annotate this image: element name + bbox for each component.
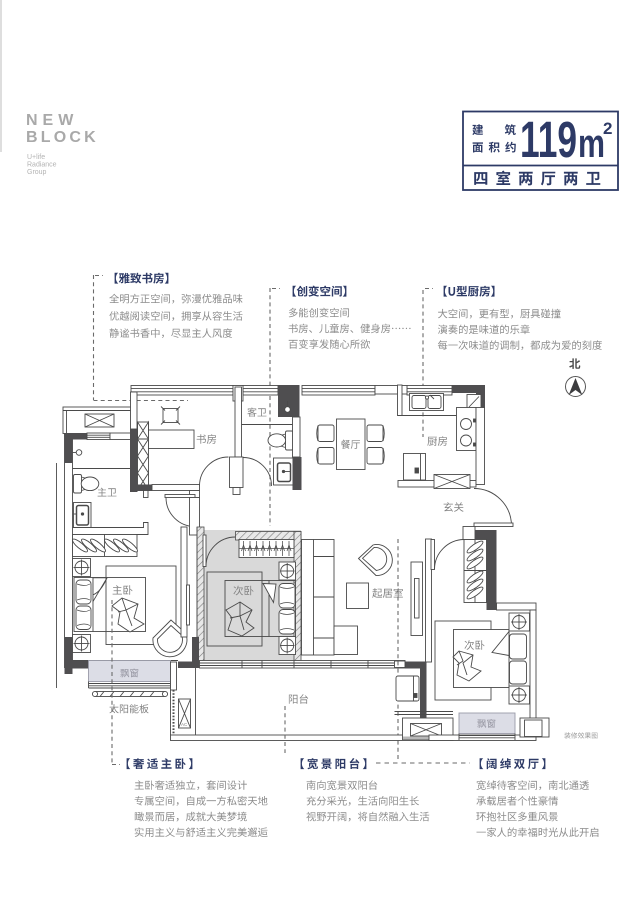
svg-text:U+life: U+life (27, 154, 45, 161)
svg-text:Radiance: Radiance (27, 162, 57, 169)
svg-text:m: m (578, 122, 605, 166)
svg-text:BLOCK: BLOCK (26, 129, 99, 146)
svg-text:AC: AC (181, 722, 188, 727)
svg-text:NEW: NEW (26, 112, 78, 129)
svg-text:119: 119 (520, 111, 577, 168)
svg-text:Group: Group (27, 169, 47, 176)
svg-text:2: 2 (603, 119, 612, 138)
